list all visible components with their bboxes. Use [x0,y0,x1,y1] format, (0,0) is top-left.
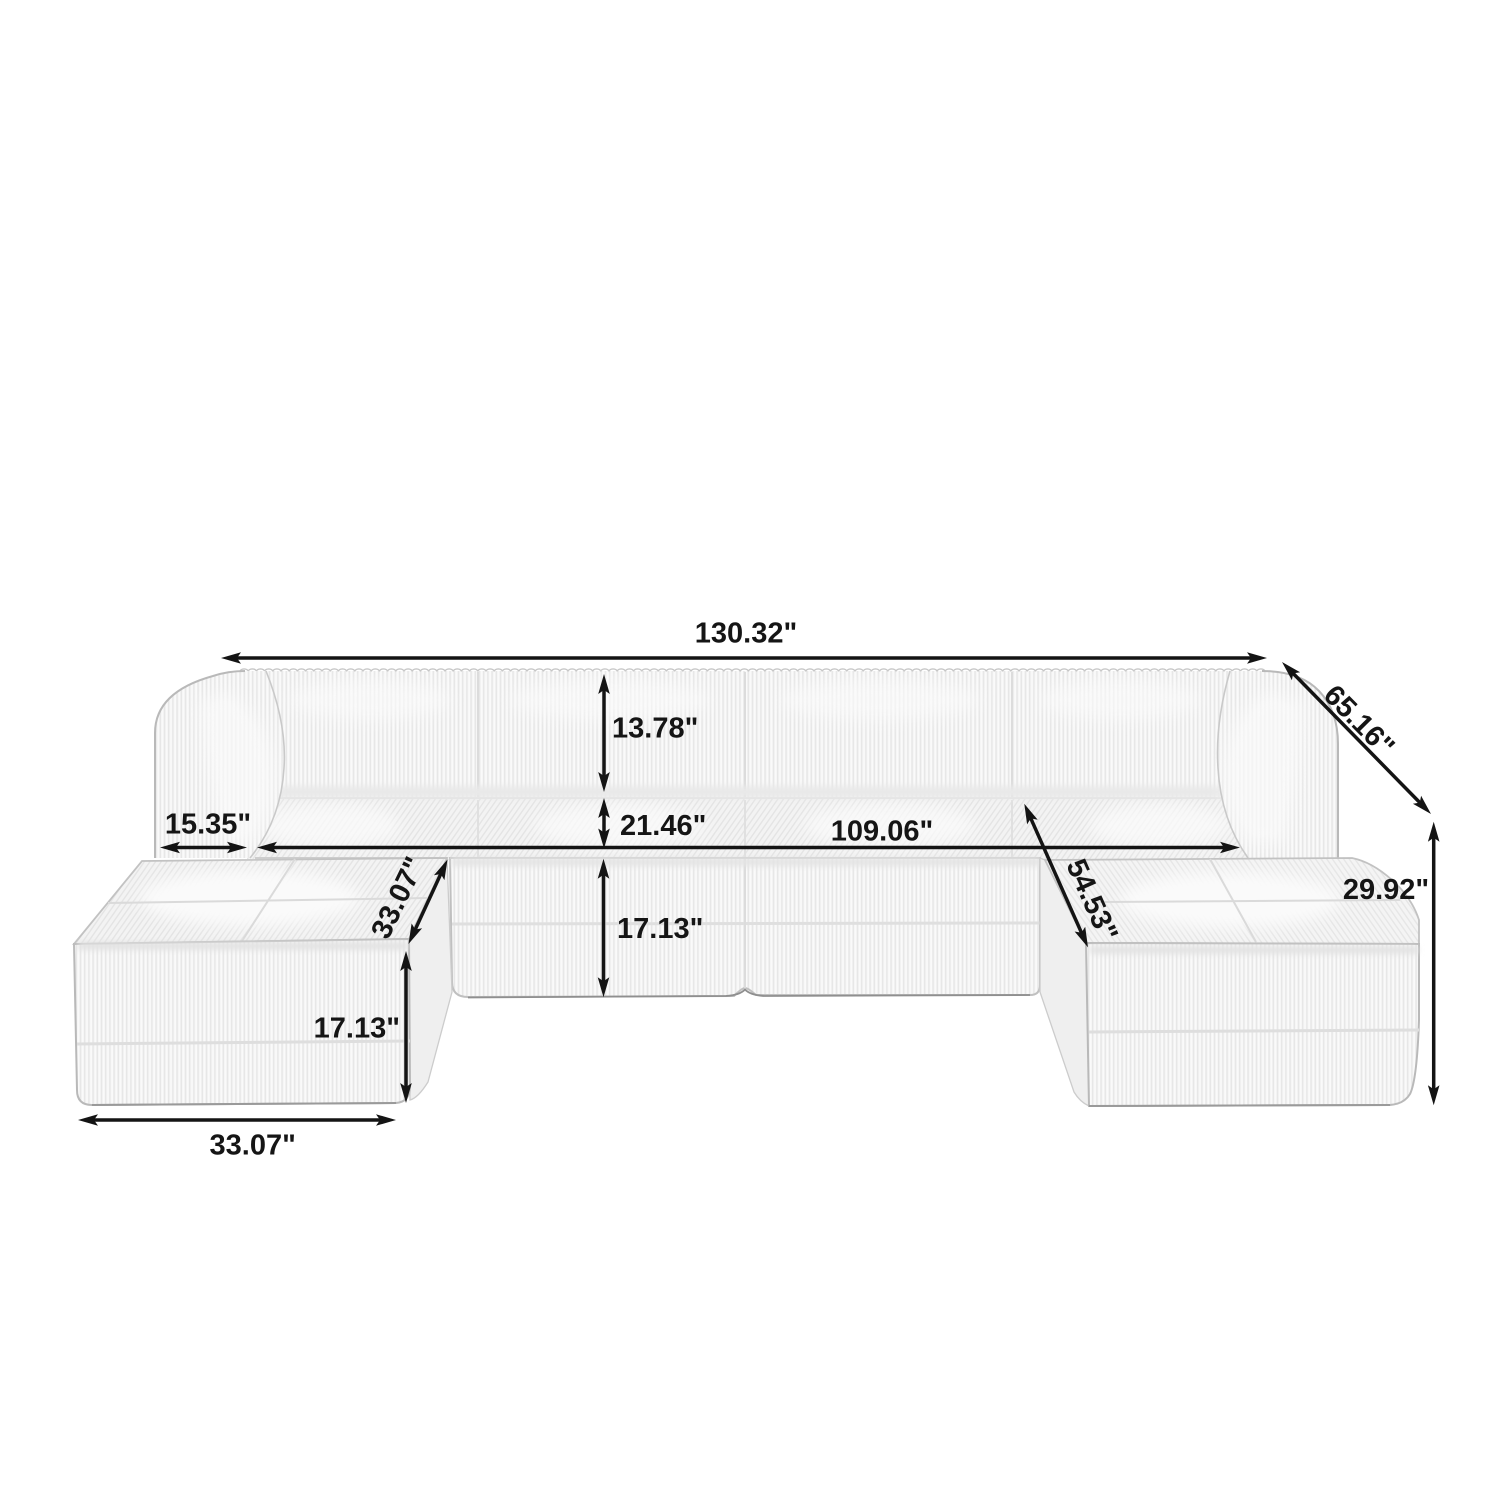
svg-text:17.13": 17.13" [617,913,703,945]
svg-text:29.92": 29.92" [1343,874,1429,906]
svg-text:13.78": 13.78" [612,713,698,745]
svg-text:15.35": 15.35" [165,809,251,841]
svg-text:130.32": 130.32" [695,618,797,650]
svg-text:21.46": 21.46" [620,810,706,842]
svg-text:109.06": 109.06" [831,816,933,848]
svg-text:17.13": 17.13" [314,1013,400,1045]
svg-text:33.07": 33.07" [210,1130,296,1162]
